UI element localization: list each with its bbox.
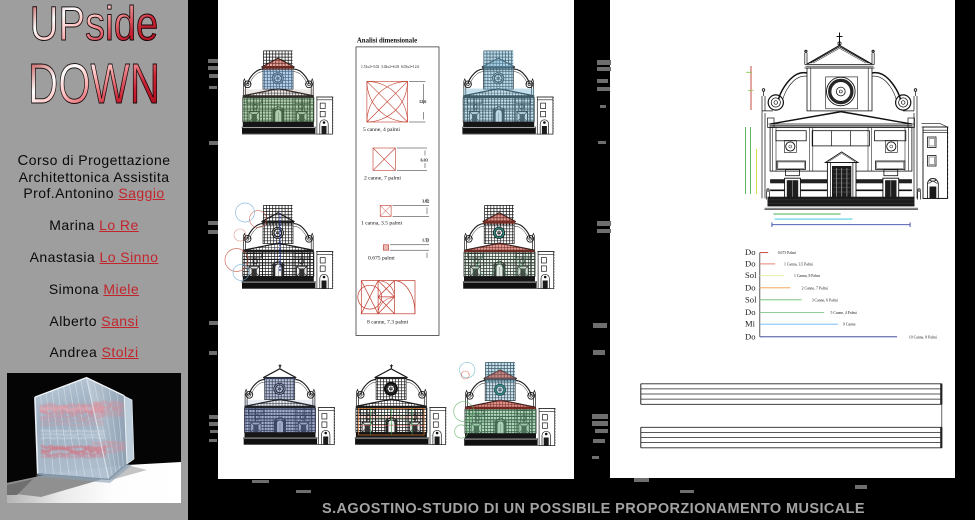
svg-text:1 Canna, 3.5 Palmi: 1 Canna, 3.5 Palmi [784, 262, 813, 267]
svg-text:10 Canne, 8 Palmi: 10 Canne, 8 Palmi [909, 335, 937, 340]
svg-text:6.03: 6.03 [421, 158, 428, 163]
svg-text:Do: Do [745, 282, 756, 292]
svg-text:Do: Do [745, 331, 756, 341]
svg-text:2 Canne, 7 Palmi: 2 Canne, 7 Palmi [802, 286, 828, 291]
svg-text:1.51: 1.51 [422, 238, 429, 243]
svg-text:Do: Do [745, 258, 756, 268]
svg-text:2 canne, 7 palmi: 2 canne, 7 palmi [364, 176, 401, 182]
svg-text:Sol: Sol [745, 294, 757, 304]
svg-text:0.675 palmi: 0.675 palmi [368, 256, 395, 262]
svg-text:0.675 Palmi: 0.675 Palmi [778, 251, 796, 255]
svg-text:12.6: 12.6 [419, 99, 426, 104]
svg-text:1 canna, 3.5 palmi: 1 canna, 3.5 palmi [361, 221, 403, 227]
svg-text:1 Canna, 8 Palmi: 1 Canna, 8 Palmi [794, 274, 820, 279]
svg-text:5 canne, 4 palmi: 5 canne, 4 palmi [363, 127, 400, 133]
svg-text:Do: Do [745, 247, 756, 257]
svg-text:1.51x2=3.02 3.02x2=6.03 6.03: 1.51x2=3.02 3.02x2=6.03 6.03x2=12.6 [361, 65, 419, 69]
svg-text:3 Canne, 6 Palmi: 3 Canne, 6 Palmi [812, 298, 838, 303]
svg-text:Analisi dimensionale: Analisi dimensionale [357, 38, 417, 45]
svg-text:9 Canne: 9 Canne [843, 323, 856, 327]
svg-text:Sol: Sol [745, 270, 757, 280]
svg-text:5 Canne, 4 Palmi: 5 Canne, 4 Palmi [831, 311, 857, 316]
svg-text:3.02: 3.02 [422, 199, 429, 204]
svg-text:Do: Do [745, 307, 756, 317]
svg-text:Mi: Mi [745, 319, 756, 329]
svg-text:8 canne, 7.3 palmi: 8 canne, 7.3 palmi [367, 319, 409, 325]
